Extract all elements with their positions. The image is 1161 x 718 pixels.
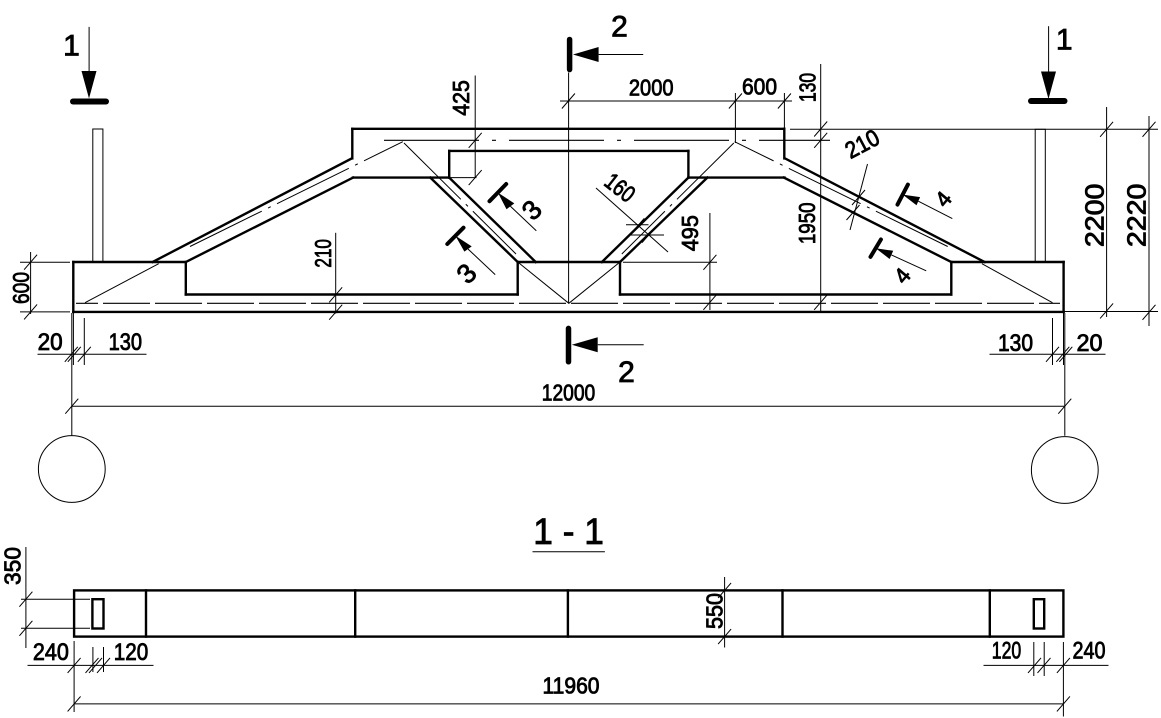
svg-text:1950: 1950 (794, 202, 820, 244)
svg-text:240: 240 (33, 639, 69, 666)
svg-text:495: 495 (677, 215, 703, 251)
svg-text:2220: 2220 (1122, 184, 1152, 248)
svg-text:240: 240 (1073, 638, 1106, 665)
svg-text:350: 350 (0, 547, 26, 585)
svg-text:120: 120 (992, 638, 1022, 665)
svg-text:1: 1 (63, 29, 80, 62)
svg-text:600: 600 (8, 272, 34, 304)
svg-text:12000: 12000 (542, 379, 596, 405)
svg-text:600: 600 (742, 74, 777, 100)
svg-text:550: 550 (702, 593, 728, 629)
svg-text:120: 120 (114, 639, 149, 666)
svg-text:11960: 11960 (543, 672, 600, 698)
svg-text:1 - 1: 1 - 1 (533, 511, 604, 552)
svg-text:130: 130 (109, 329, 142, 356)
svg-text:2: 2 (611, 11, 628, 44)
svg-text:2: 2 (618, 356, 635, 389)
svg-text:130: 130 (794, 73, 820, 102)
svg-text:1: 1 (1056, 24, 1073, 57)
svg-text:210: 210 (310, 239, 336, 268)
svg-text:20: 20 (1077, 330, 1103, 357)
svg-text:425: 425 (448, 80, 474, 116)
svg-text:2000: 2000 (629, 74, 674, 100)
svg-text:20: 20 (38, 329, 63, 356)
svg-text:2200: 2200 (1080, 184, 1110, 248)
svg-text:130: 130 (998, 330, 1033, 357)
